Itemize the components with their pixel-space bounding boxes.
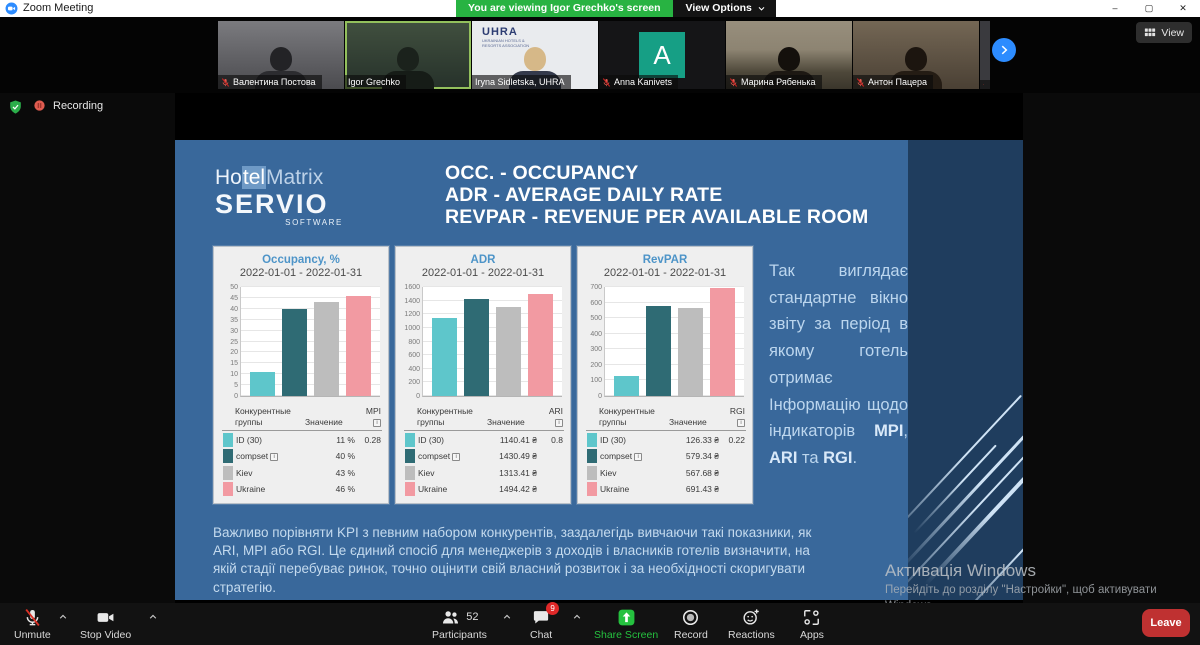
video-options-caret[interactable]: [148, 612, 158, 622]
share-screen-button[interactable]: Share Screen: [594, 607, 658, 641]
kpi-table-row: Ukraine46 %: [222, 481, 382, 498]
meeting-toolbar: Unmute Stop Video 52 Participants 9 Chat…: [0, 603, 1200, 645]
participant-name-tag: [980, 80, 990, 89]
participant-name-tag: Iryna Sidletska, UHRA: [472, 75, 571, 89]
legend-swatch: [405, 433, 415, 447]
legend-swatch: [405, 449, 415, 463]
slide-title: OCC. - OCCUPANCY ADR - AVERAGE DAILY RAT…: [445, 162, 1023, 229]
share-screen-icon: [617, 608, 636, 627]
chart-title: Occupancy, %: [214, 254, 388, 266]
video-camera-icon: [95, 608, 116, 627]
muted-mic-icon: [983, 80, 984, 89]
hotelmatrix-servio-logo: HotelMatrix SERVIO SOFTWARE: [215, 166, 355, 227]
bar-Kiev: [314, 302, 339, 396]
info-icon: i: [737, 419, 745, 427]
bar-compset: [646, 306, 671, 396]
kpi-panel-revpar: RevPAR2022-01-01 - 2022-01-3101002003004…: [577, 246, 753, 504]
participants-options-caret[interactable]: [502, 612, 512, 622]
participant-name-tag: Валентина Постова: [218, 75, 322, 89]
participants-icon: [440, 608, 461, 627]
slide-bottom-text: Важливо порівняти KPI з певним набором к…: [213, 524, 827, 597]
bar-Kiev: [496, 307, 521, 396]
bar-ID (30): [432, 318, 457, 396]
stop-video-button[interactable]: Stop Video: [80, 607, 131, 641]
recording-label: Recording: [53, 100, 103, 112]
info-icon: i: [452, 453, 460, 461]
kpi-table-row: Kiev1313.41 ₴: [404, 464, 564, 481]
record-icon: [681, 608, 700, 627]
close-button[interactable]: ✕: [1166, 0, 1200, 17]
legend-swatch: [405, 466, 415, 480]
presentation-slide: HotelMatrix SERVIO SOFTWARE OCC. - OCCUP…: [175, 140, 1023, 600]
zoom-app-icon: [5, 2, 18, 15]
kpi-table: Конкурентные группыЗначениеRGIiID (30)12…: [586, 406, 746, 497]
reactions-button[interactable]: Reactions: [728, 607, 775, 641]
reactions-smiley-icon: [741, 607, 761, 627]
chart-date-range: 2022-01-01 - 2022-01-31: [396, 267, 570, 279]
recording-icon: [33, 99, 46, 112]
participant-initial: A: [639, 32, 685, 78]
participants-count: 52: [466, 611, 478, 623]
legend-swatch: [223, 482, 233, 496]
bar-ID (30): [614, 376, 639, 396]
uhra-logo-text: UHRA: [482, 26, 518, 38]
unmute-options-caret[interactable]: [58, 612, 68, 622]
participant-thumbnail-Антон Пацера[interactable]: Антон Пацера: [853, 21, 979, 89]
kpi-panel-adr: ADR2022-01-01 - 2022-01-3102004006008001…: [395, 246, 571, 504]
kpi-table-row: compseti579.34 ₴: [586, 448, 746, 465]
kpi-table-row: compseti40 %: [222, 448, 382, 465]
chart-title: RevPAR: [578, 254, 752, 266]
muted-mic-icon: [221, 78, 230, 87]
participant-thumbnail-Марина Рябенька[interactable]: Марина Рябенька: [726, 21, 852, 89]
participants-button[interactable]: 52 Participants: [432, 607, 487, 641]
chart-plot-area: 0100200300400500600700: [604, 287, 744, 397]
legend-swatch: [405, 482, 415, 496]
legend-swatch: [587, 482, 597, 496]
chat-unread-badge: 9: [546, 602, 559, 615]
next-participants-button[interactable]: [992, 38, 1016, 62]
minimize-button[interactable]: –: [1098, 0, 1132, 17]
legend-swatch: [223, 433, 233, 447]
unmute-button[interactable]: Unmute: [14, 607, 51, 641]
info-icon: i: [270, 453, 278, 461]
slide-side-text: Так виглядає стандартне вікно звіту за п…: [769, 258, 908, 472]
chevron-right-icon: [997, 43, 1011, 57]
participant-thumbnail-Igor Grechko[interactable]: Igor Grechko: [345, 21, 471, 89]
legend-swatch: [587, 466, 597, 480]
chart-date-range: 2022-01-01 - 2022-01-31: [578, 267, 752, 279]
chart-plot-area: 05101520253035404550: [240, 287, 380, 397]
legend-swatch: [587, 433, 597, 447]
recording-indicator[interactable]: Recording: [33, 99, 103, 112]
view-options-button[interactable]: View Options: [673, 0, 776, 17]
participant-name-tag: Anna Kanivets: [599, 75, 678, 89]
participant-thumbnail-Валентина Постова[interactable]: Валентина Постова: [218, 21, 344, 89]
kpi-table-row: ID (30)1140.41 ₴0.8: [404, 431, 564, 448]
kpi-table-row: Ukraine1494.42 ₴: [404, 481, 564, 498]
record-button[interactable]: Record: [674, 607, 708, 641]
gallery-grid-icon: [1144, 27, 1156, 38]
kpi-table-row: Ukraine691.43 ₴: [586, 481, 746, 498]
bar-compset: [464, 299, 489, 396]
kpi-table-row: ID (30)11 %0.28: [222, 431, 382, 448]
kpi-table: Конкурентные группыЗначениеARIiID (30)11…: [404, 406, 564, 497]
kpi-table-row: compseti1430.49 ₴: [404, 448, 564, 465]
microphone-muted-icon: [23, 608, 42, 627]
legend-swatch: [223, 466, 233, 480]
info-icon: i: [634, 453, 642, 461]
muted-mic-icon: [729, 78, 738, 87]
bar-Ukraine: [528, 294, 553, 396]
participant-name-tag: Igor Grechko: [345, 75, 406, 89]
chart-title: ADR: [396, 254, 570, 266]
bar-Kiev: [678, 308, 703, 396]
kpi-table-row: ID (30)126.33 ₴0.22: [586, 431, 746, 448]
legend-swatch: [587, 449, 597, 463]
muted-mic-icon: [856, 78, 865, 87]
participant-thumbnail-Anna Kanivets[interactable]: AAnna Kanivets: [599, 21, 725, 89]
view-options-label: View Options: [686, 0, 752, 17]
filmstrip: View Валентина ПостоваIgor GrechkoUHRAUK…: [0, 17, 1200, 93]
bar-ID (30): [250, 372, 275, 396]
viewing-screen-banner: You are viewing Igor Grechko's screen: [456, 0, 673, 17]
kpi-panel-occupancy: Occupancy, %2022-01-01 - 2022-01-3105101…: [213, 246, 389, 504]
info-icon: i: [373, 419, 381, 427]
muted-mic-icon: [602, 78, 611, 87]
legend-swatch: [223, 449, 233, 463]
bar-compset: [282, 309, 307, 396]
leave-button[interactable]: Leave: [1142, 609, 1190, 637]
kpi-table-row: Kiev43 %: [222, 464, 382, 481]
maximize-button[interactable]: ▢: [1132, 0, 1166, 17]
apps-button[interactable]: Apps: [800, 607, 824, 641]
info-icon: i: [555, 419, 563, 427]
view-button-label: View: [1161, 27, 1184, 39]
chart-date-range: 2022-01-01 - 2022-01-31: [214, 267, 388, 279]
kpi-table: Конкурентные группыЗначениеMPIiID (30)11…: [222, 406, 382, 497]
bar-Ukraine: [346, 296, 371, 396]
participant-name-tag: Марина Рябенька: [726, 75, 822, 89]
window-title: Zoom Meeting: [23, 0, 93, 17]
chat-button[interactable]: 9 Chat: [530, 607, 552, 641]
participant-thumbnail-Iryna Sidletska, UHRA[interactable]: UHRAUKRAINIAN HOTELS & RESORTS ASSOCIATI…: [472, 21, 598, 89]
chat-options-caret[interactable]: [572, 612, 582, 622]
kpi-table-row: Kiev567.68 ₴: [586, 464, 746, 481]
participant-name-tag: Антон Пацера: [853, 75, 933, 89]
chevron-down-icon: [757, 4, 766, 13]
apps-grid-icon: [802, 608, 821, 627]
participant-thumbnail-6[interactable]: [980, 21, 990, 89]
bar-Ukraine: [710, 288, 735, 396]
chart-plot-area: 02004006008001000120014001600: [422, 287, 562, 397]
security-shield-icon[interactable]: [8, 99, 23, 115]
view-layout-button[interactable]: View: [1136, 22, 1192, 43]
